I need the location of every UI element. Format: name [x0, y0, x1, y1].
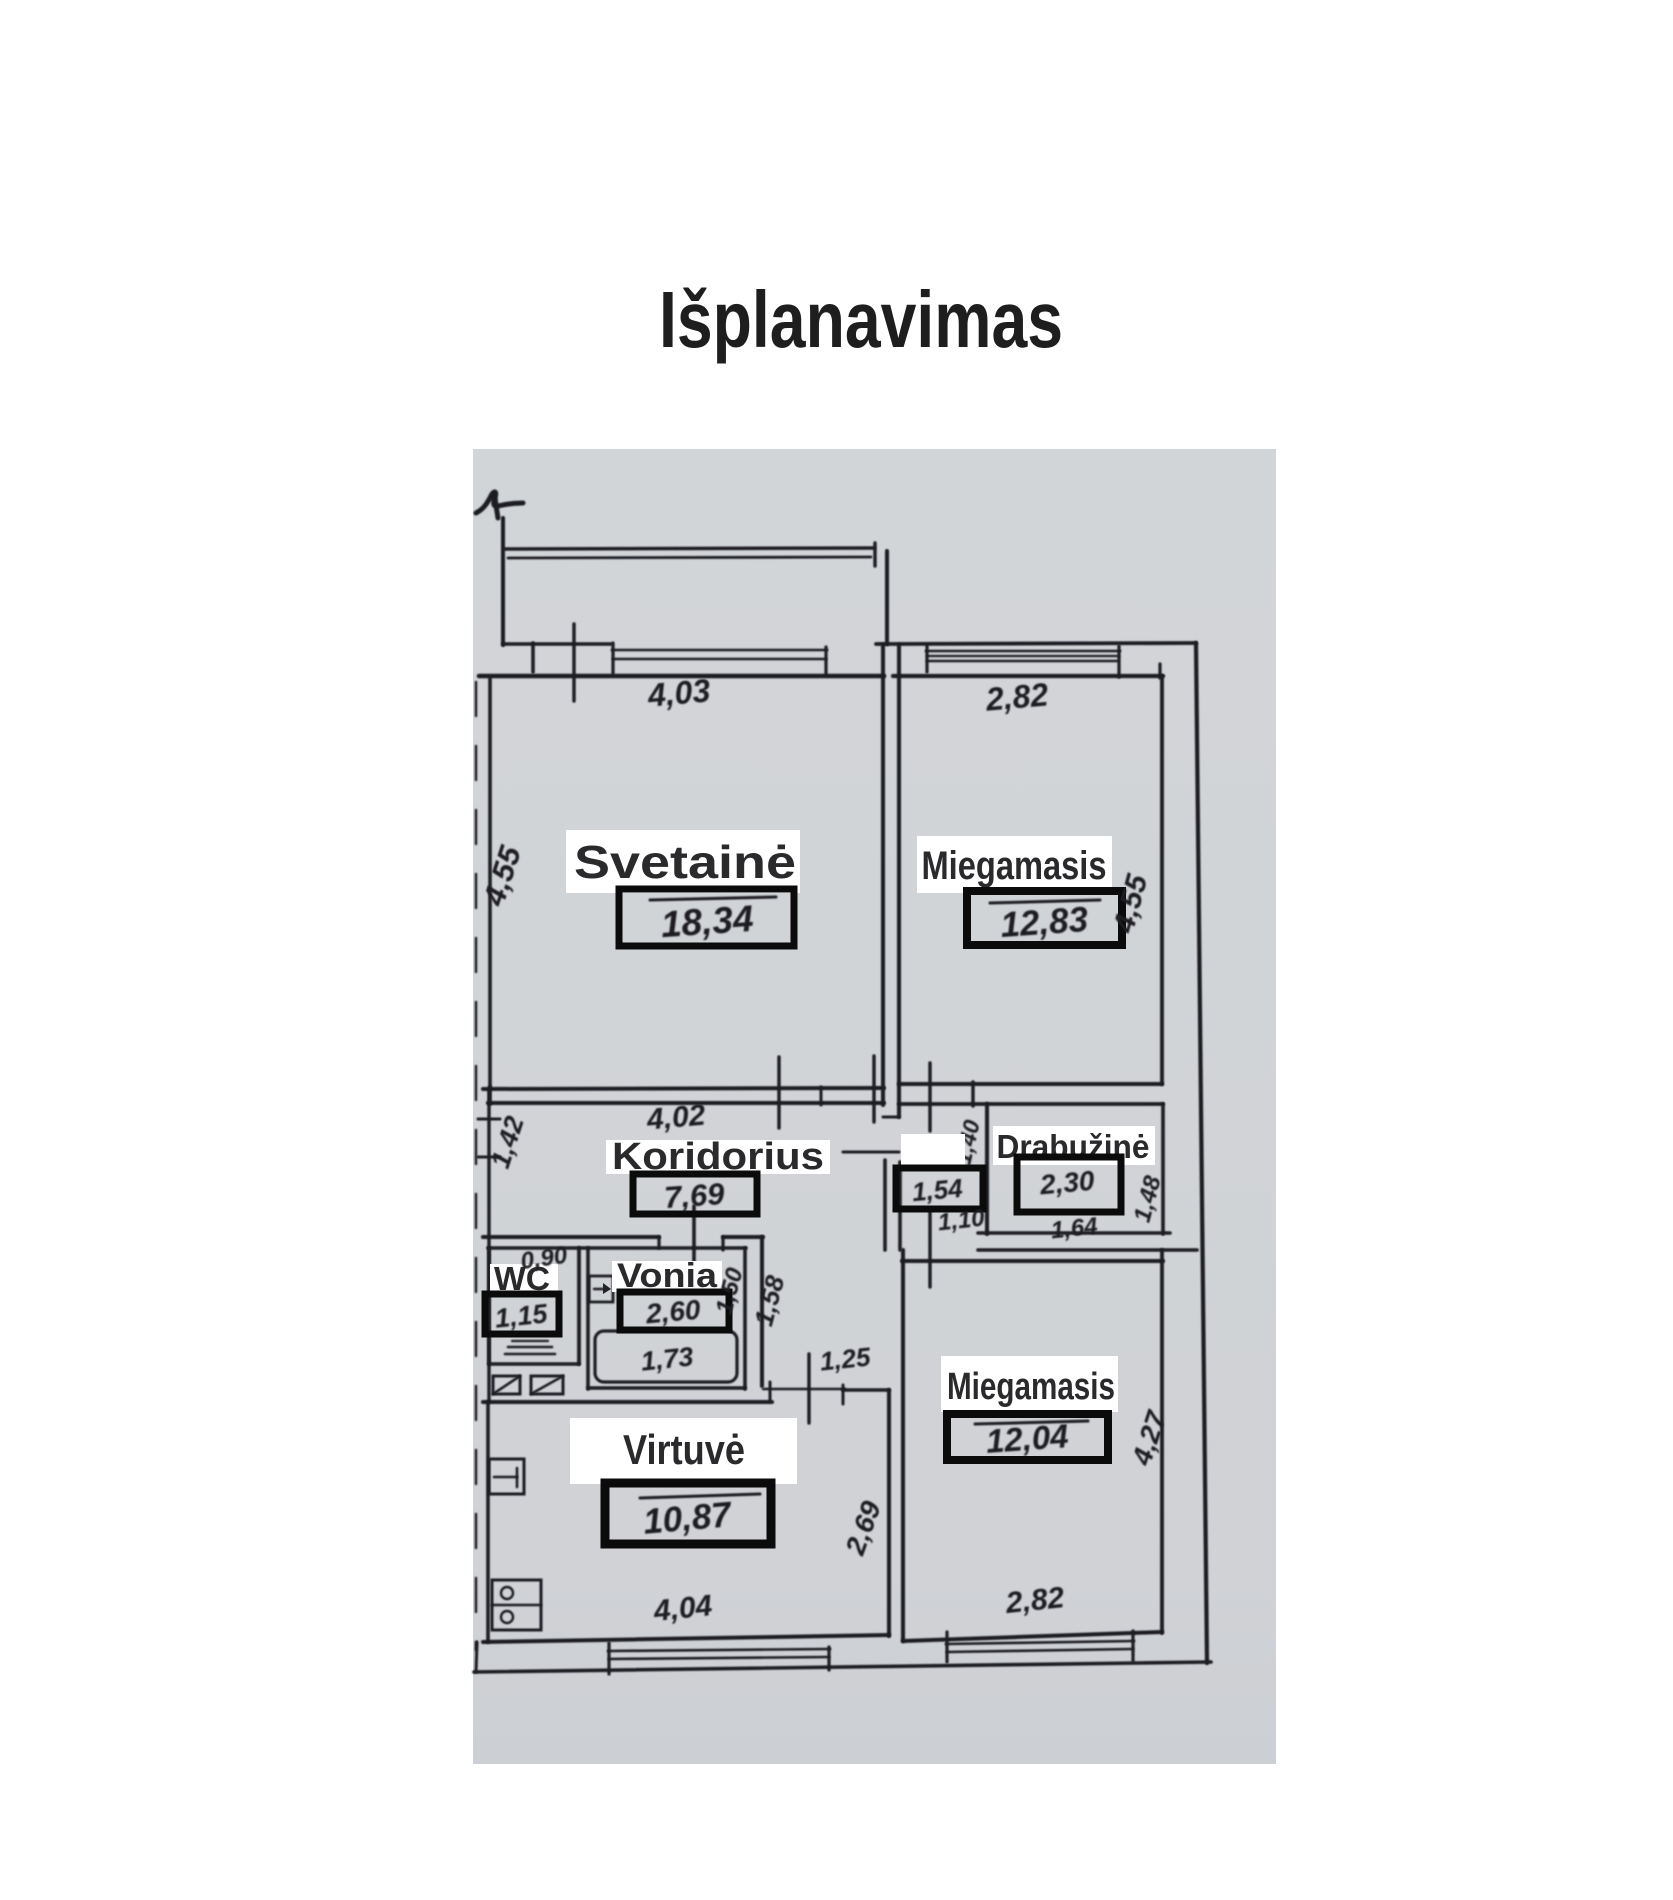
svg-text:Miegamasis: Miegamasis	[947, 1366, 1115, 1408]
svg-text:1,73: 1,73	[639, 1341, 694, 1376]
svg-text:1,10: 1,10	[937, 1205, 987, 1237]
svg-text:12,83: 12,83	[999, 900, 1090, 945]
svg-text:7,69: 7,69	[663, 1176, 726, 1215]
svg-text:Išplanavimas: Išplanavimas	[659, 275, 1063, 364]
svg-text:Virtuvė: Virtuvė	[623, 1426, 745, 1473]
svg-text:2,30: 2,30	[1038, 1165, 1096, 1201]
svg-text:4,02: 4,02	[645, 1099, 707, 1137]
svg-text:4,04: 4,04	[651, 1589, 714, 1628]
svg-text:2,82: 2,82	[983, 676, 1049, 717]
svg-text:Miegamasis: Miegamasis	[922, 844, 1107, 888]
svg-text:2,82: 2,82	[1003, 1581, 1066, 1620]
svg-text:4,03: 4,03	[645, 672, 711, 713]
svg-text:2,60: 2,60	[644, 1294, 702, 1330]
svg-text:1,54: 1,54	[911, 1173, 965, 1207]
svg-text:1,64: 1,64	[1050, 1213, 1099, 1245]
svg-text:10,87: 10,87	[642, 1495, 734, 1542]
svg-text:Svetainė: Svetainė	[574, 836, 796, 888]
svg-text:12,04: 12,04	[985, 1417, 1070, 1460]
svg-text:1,15: 1,15	[493, 1298, 549, 1333]
svg-text:18,34: 18,34	[660, 898, 755, 945]
svg-text:1,25: 1,25	[818, 1341, 872, 1376]
